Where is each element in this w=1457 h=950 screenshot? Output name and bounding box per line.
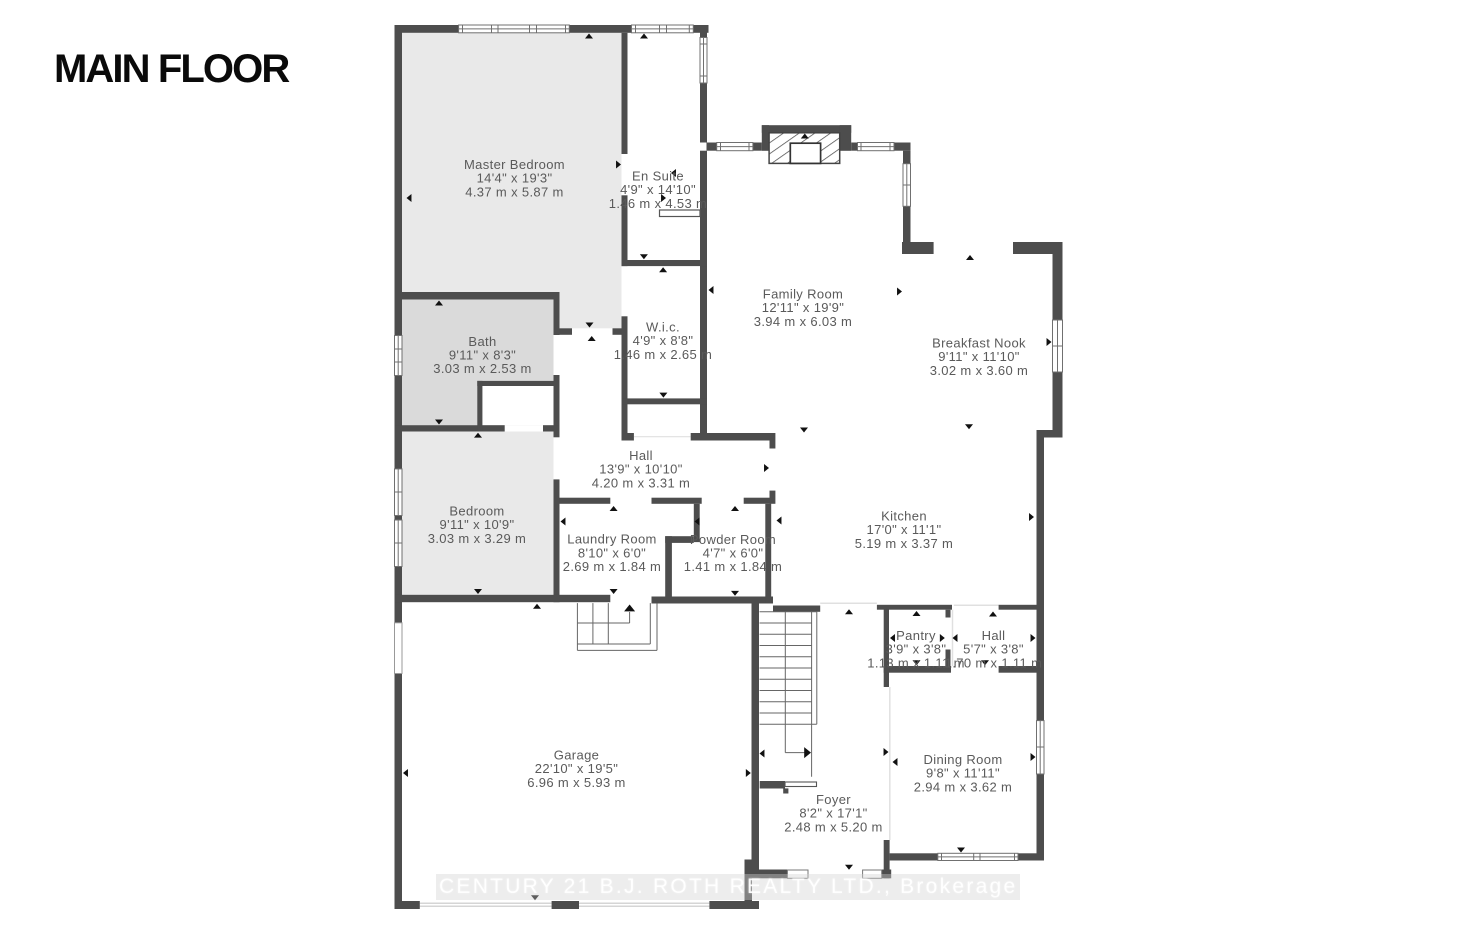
- svg-text:Hall5'7" x 3'8"1.70 m x 1.11 m: Hall5'7" x 3'8"1.70 m x 1.11 m: [945, 628, 1043, 670]
- svg-text:Family Room12'11" x 19'9"3.94: Family Room12'11" x 19'9"3.94 m x 6.03 m: [754, 287, 852, 329]
- svg-text:Hall13'9" x 10'10"4.20 m x 3.3: Hall13'9" x 10'10"4.20 m x 3.31 m: [592, 448, 690, 490]
- svg-text:Foyer8'2" x 17'1"2.48 m x 5.20: Foyer8'2" x 17'1"2.48 m x 5.20 m: [784, 792, 882, 834]
- svg-text:Garage22'10" x 19'5"6.96 m x 5: Garage22'10" x 19'5"6.96 m x 5.93 m: [527, 748, 625, 790]
- svg-text:Kitchen17'0" x 11'1"5.19 m x 3: Kitchen17'0" x 11'1"5.19 m x 3.37 m: [855, 508, 953, 550]
- svg-text:Dining Room9'8" x 11'11"2.94 m: Dining Room9'8" x 11'11"2.94 m x 3.62 m: [914, 752, 1012, 794]
- svg-text:Master Bedroom14'4" x 19'3"4.3: Master Bedroom14'4" x 19'3"4.37 m x 5.87…: [464, 157, 565, 199]
- svg-text:Laundry Room8'10" x 6'0"2.69 m: Laundry Room8'10" x 6'0"2.69 m x 1.84 m: [563, 532, 661, 574]
- svg-text:En Suite4'9" x 14'10"1.46 m x: En Suite4'9" x 14'10"1.46 m x 4.53 m: [609, 169, 707, 211]
- svg-text:Breakfast Nook9'11" x 11'10"3.: Breakfast Nook9'11" x 11'10"3.02 m x 3.6…: [930, 336, 1028, 378]
- svg-text:W.i.c.4'9" x 8'8"1.46 m x 2.65: W.i.c.4'9" x 8'8"1.46 m x 2.65 m: [614, 320, 712, 362]
